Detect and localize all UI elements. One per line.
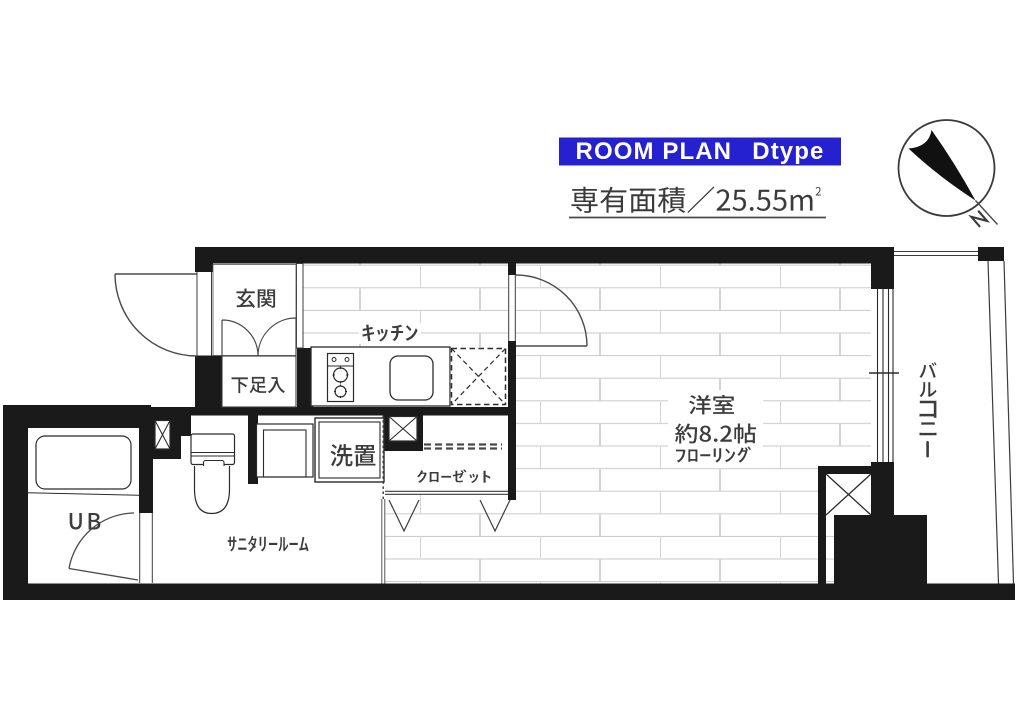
svg-text:ROOM PLAN Dtype: ROOM PLAN Dtype [576,138,825,165]
